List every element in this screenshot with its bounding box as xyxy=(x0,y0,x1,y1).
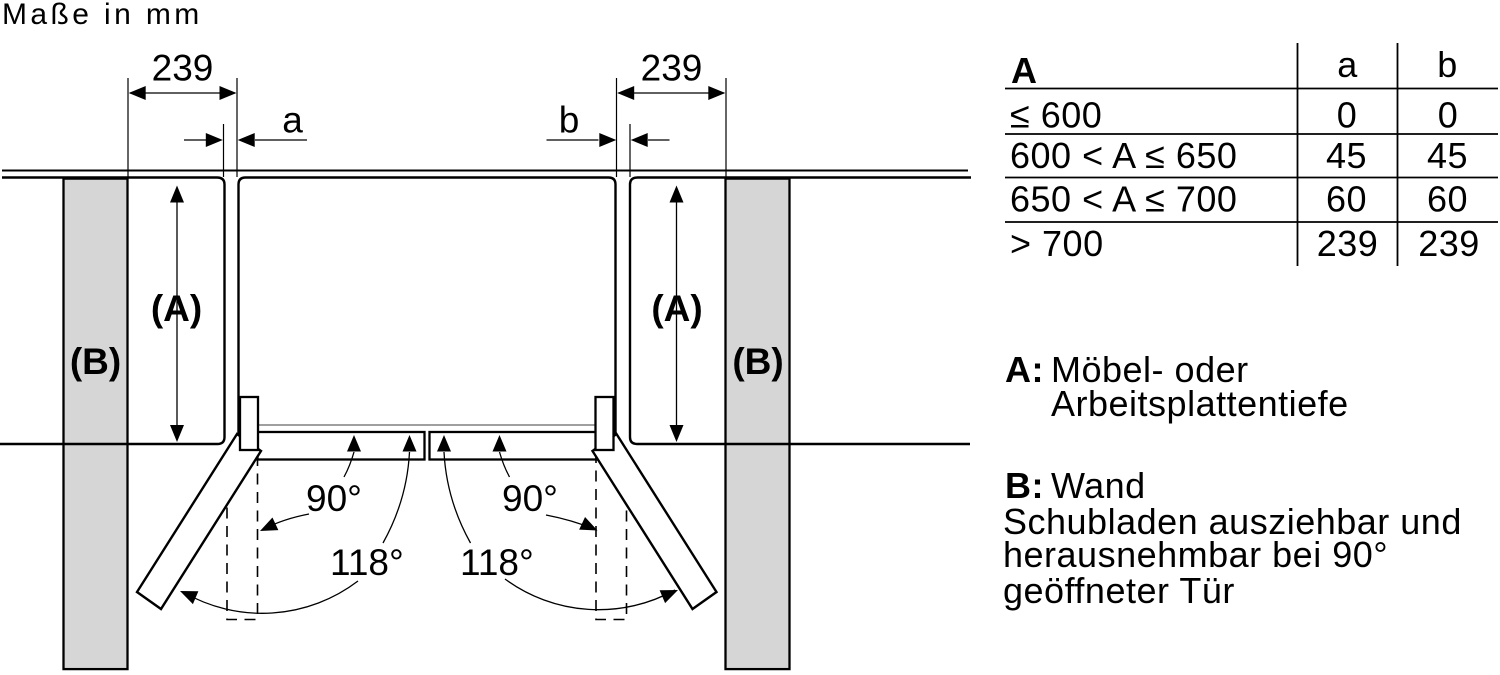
svg-text:Wand: Wand xyxy=(1051,465,1146,506)
svg-text:0: 0 xyxy=(1337,95,1358,136)
svg-text:600 < A ≤ 650: 600 < A ≤ 650 xyxy=(1010,135,1237,176)
svg-text:239: 239 xyxy=(641,48,703,89)
svg-text:(A): (A) xyxy=(151,288,202,329)
svg-text:> 700: > 700 xyxy=(1010,223,1104,264)
svg-text:60: 60 xyxy=(1326,179,1367,220)
svg-text:b: b xyxy=(1437,44,1458,85)
svg-text:239: 239 xyxy=(1418,223,1480,264)
svg-text:0: 0 xyxy=(1438,95,1459,136)
svg-text:geöffneter Tür: geöffneter Tür xyxy=(1003,570,1235,611)
svg-text:239: 239 xyxy=(1317,223,1379,264)
svg-text:b: b xyxy=(559,100,580,141)
svg-text:650 < A ≤ 700: 650 < A ≤ 700 xyxy=(1010,179,1237,220)
svg-text:herausnehmbar bei 90°: herausnehmbar bei 90° xyxy=(1003,534,1388,575)
svg-text:A: A xyxy=(1011,50,1038,91)
svg-text:45: 45 xyxy=(1427,135,1468,176)
svg-text:(A): (A) xyxy=(651,288,702,329)
svg-text:A:: A: xyxy=(1005,349,1044,390)
svg-text:B:: B: xyxy=(1005,465,1044,506)
svg-text:45: 45 xyxy=(1326,135,1367,176)
svg-text:239: 239 xyxy=(152,48,214,89)
svg-text:a: a xyxy=(282,100,303,141)
svg-text:60: 60 xyxy=(1427,179,1468,220)
svg-text:(B): (B) xyxy=(70,341,121,382)
svg-text:(B): (B) xyxy=(732,341,783,382)
svg-text:a: a xyxy=(1337,44,1358,85)
svg-text:90°: 90° xyxy=(502,478,558,519)
svg-text:≤ 600: ≤ 600 xyxy=(1010,95,1102,136)
svg-text:118°: 118° xyxy=(330,542,404,583)
svg-text:Maße in mm: Maße in mm xyxy=(2,0,203,31)
svg-text:118°: 118° xyxy=(460,542,534,583)
svg-text:90°: 90° xyxy=(306,478,362,519)
svg-text:Arbeitsplattentiefe: Arbeitsplattentiefe xyxy=(1051,383,1349,424)
